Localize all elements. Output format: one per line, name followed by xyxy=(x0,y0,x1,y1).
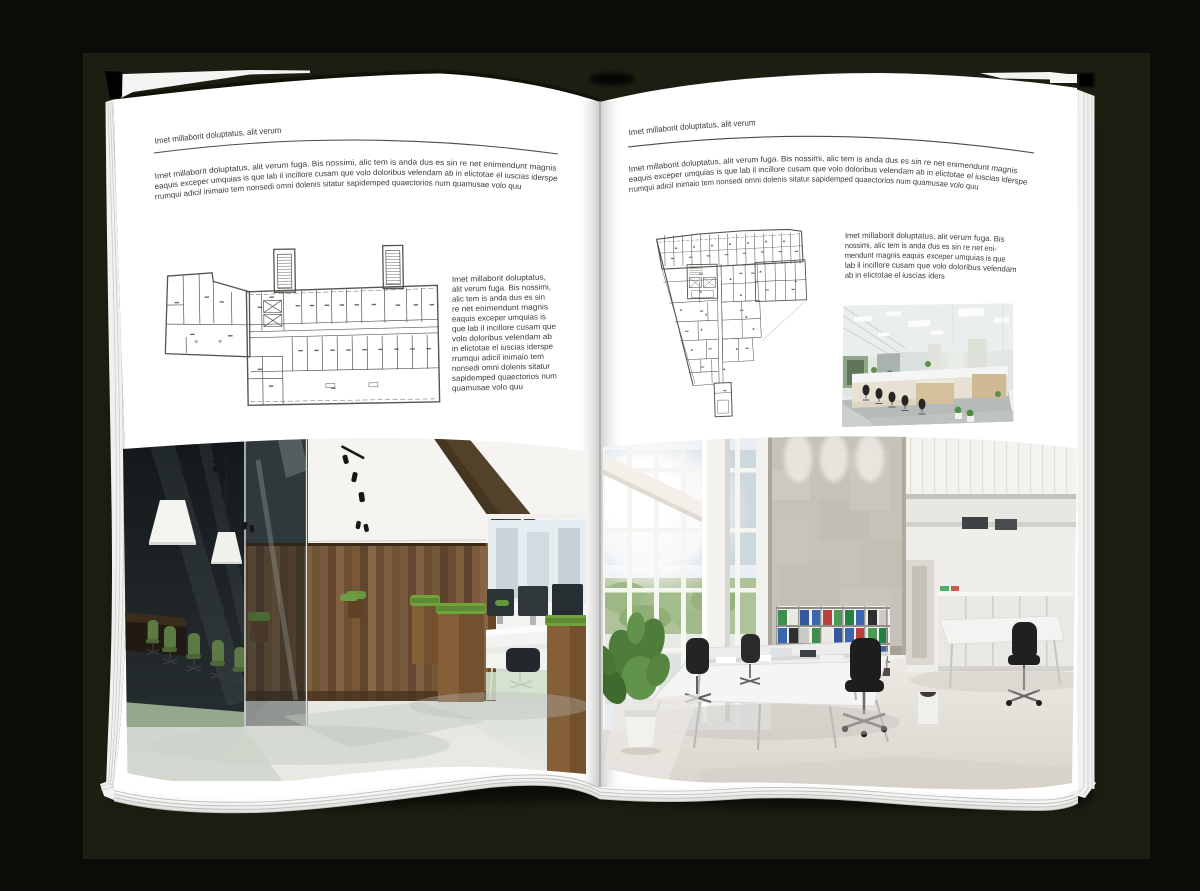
svg-text:quamusae volo quu: quamusae volo quu xyxy=(452,382,523,393)
